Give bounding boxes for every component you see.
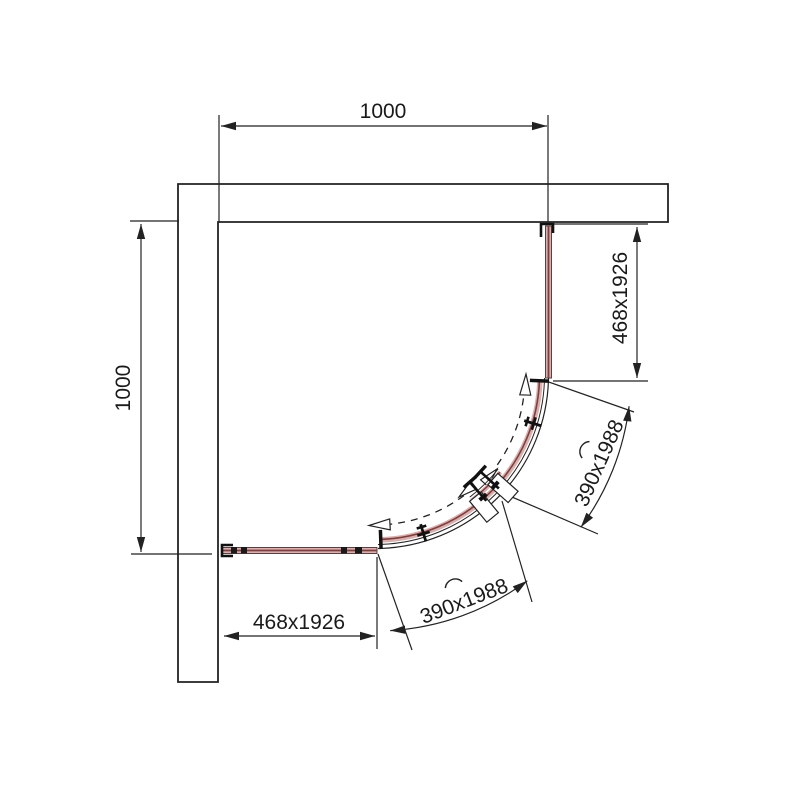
slide-direction-arrow-icon xyxy=(369,519,391,531)
slide-direction-arrow-icon xyxy=(520,374,532,395)
dimension-lower-door: 390x1988 xyxy=(378,501,532,650)
dimension-right-panel: 468x1926 xyxy=(553,224,648,381)
extension-line xyxy=(546,381,634,412)
drawing-svg: 1000 1000 468x1926 390x1988 390x19 xyxy=(0,0,800,800)
shower-enclosure-technical-drawing: 1000 1000 468x1926 390x1988 390x19 xyxy=(0,0,800,800)
dimension-bottom-panel: 468x1926 xyxy=(224,557,377,649)
door-slide-path xyxy=(369,374,532,531)
dimension-label-upper-door: 390x1988 xyxy=(570,416,629,510)
door-end-cap xyxy=(530,380,549,381)
dimension-arrow-icon xyxy=(390,626,405,635)
glass-clamp xyxy=(231,547,237,554)
dimension-arrow-icon xyxy=(360,632,375,640)
dimension-arrow-icon xyxy=(633,227,641,242)
track-inner-rail xyxy=(378,378,545,545)
dimension-arrow-icon xyxy=(532,122,547,130)
dimension-arrow-icon xyxy=(577,513,593,530)
curved-glass-edge xyxy=(381,381,540,540)
arc-length-symbol-icon xyxy=(577,439,589,458)
dimension-label-overall-width: 1000 xyxy=(360,100,407,123)
dimension-arrow-icon xyxy=(633,363,641,378)
dimension-label-right-panel: 468x1926 xyxy=(609,252,632,344)
dimension-arrow-icon xyxy=(221,122,236,130)
arc-length-symbol-icon xyxy=(443,576,462,588)
glass-clamp xyxy=(355,547,362,554)
dimension-label-bottom-panel: 468x1926 xyxy=(253,611,345,634)
glass-clamp xyxy=(341,547,347,554)
extension-line xyxy=(378,554,412,650)
dimension-arrow-icon xyxy=(137,224,145,239)
glass-clamp xyxy=(241,547,247,554)
door-end-cap xyxy=(380,530,381,549)
dimension-label-overall-depth: 1000 xyxy=(112,365,135,412)
dimension-label-lower-door: 390x1988 xyxy=(417,574,511,629)
dimension-arrow-icon xyxy=(224,632,239,640)
dimension-arrow-icon xyxy=(137,537,145,552)
dimension-upper-door: 390x1988 xyxy=(505,381,634,534)
